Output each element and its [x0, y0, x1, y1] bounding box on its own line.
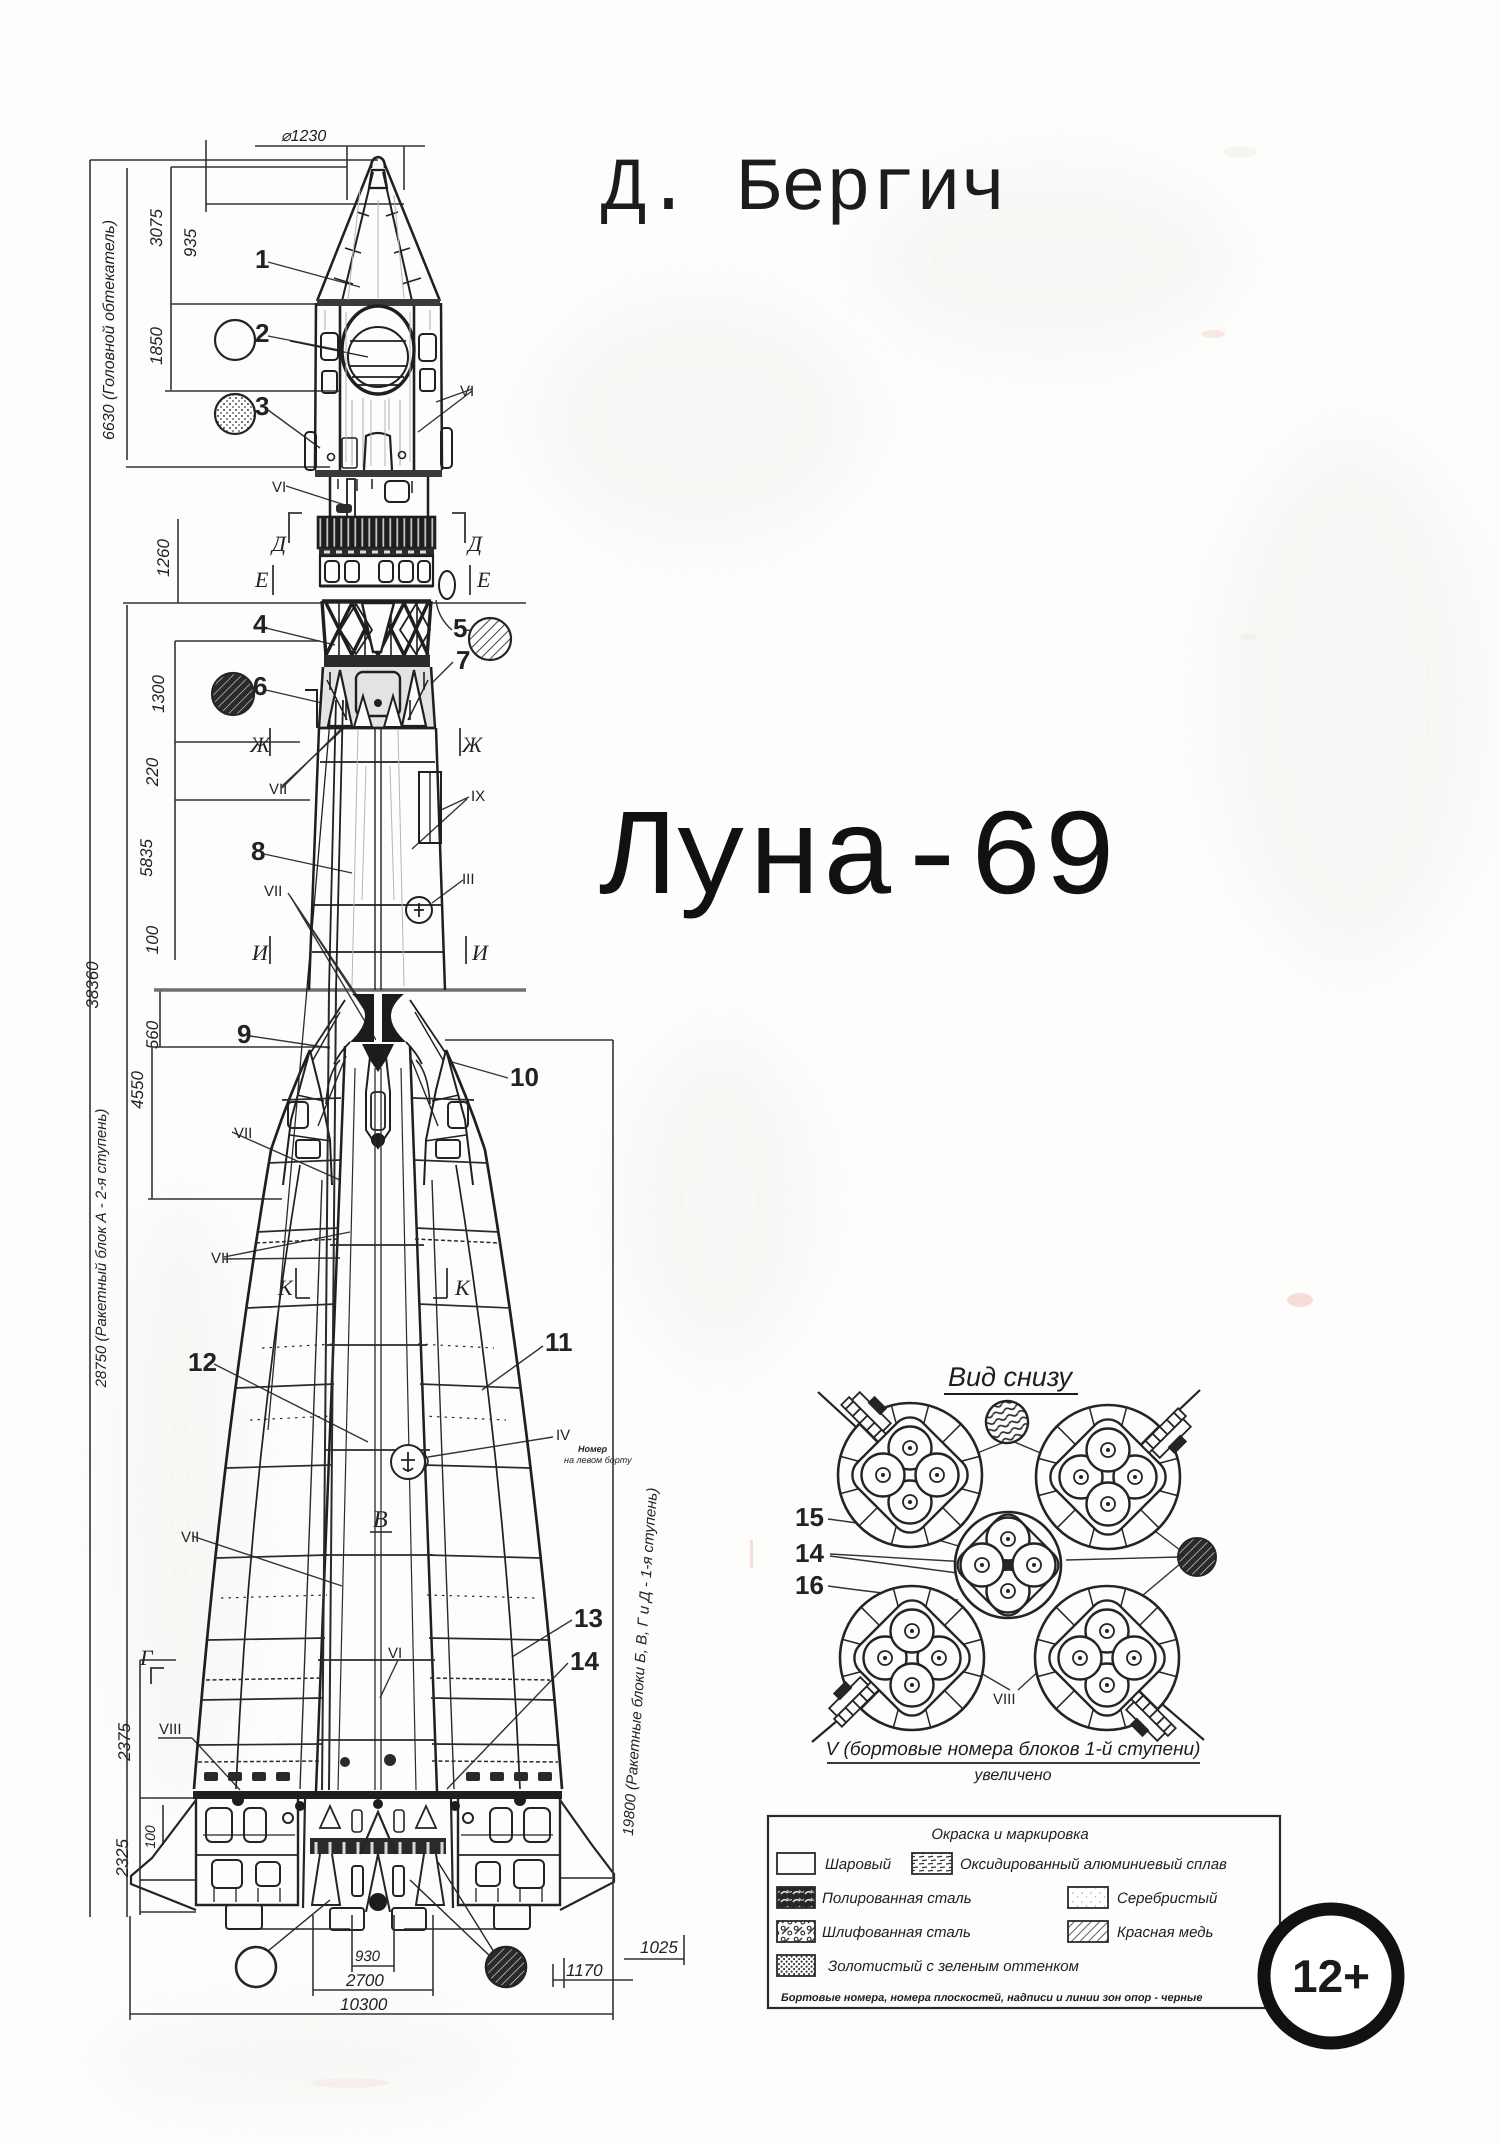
svg-text:2375: 2375 [115, 1723, 134, 1762]
svg-text:Г: Г [139, 1645, 154, 1670]
svg-text:560: 560 [143, 1020, 162, 1049]
svg-text:Номер: Номер [578, 1444, 608, 1454]
svg-text:Ж: Ж [461, 732, 483, 757]
svg-text:4550: 4550 [128, 1071, 147, 1109]
svg-text:1: 1 [255, 244, 269, 274]
svg-text:12: 12 [188, 1347, 217, 1377]
svg-text:4: 4 [253, 609, 268, 639]
svg-text:увеличено: увеличено [973, 1767, 1051, 1784]
svg-text:Луна-69: Луна-69 [599, 791, 1117, 930]
svg-text:Вид снизу: Вид снизу [948, 1362, 1073, 1392]
svg-text:2325: 2325 [113, 1839, 132, 1878]
svg-text:38360: 38360 [83, 961, 102, 1009]
svg-text:3075: 3075 [147, 209, 166, 247]
svg-text:VIII: VIII [993, 1691, 1016, 1708]
svg-text:К: К [454, 1275, 471, 1300]
svg-text:10: 10 [510, 1062, 539, 1092]
svg-text:V (бортовые номера блоков 1-й: V (бортовые номера блоков 1-й ступени) [826, 1739, 1201, 1760]
svg-text:Ж: Ж [249, 732, 271, 757]
svg-text:9: 9 [237, 1019, 251, 1049]
svg-text:Бортовые номера, номера плоско: Бортовые номера, номера плоскостей, надп… [781, 1992, 1202, 2004]
svg-text:Д. Бергич: Д. Бергич [601, 147, 1006, 232]
svg-text:1850: 1850 [147, 327, 166, 365]
svg-text:1260: 1260 [154, 539, 173, 577]
svg-text:Золотистый с зеленым оттенк: Золотистый с зеленым оттенком [828, 1958, 1079, 1975]
svg-text:7: 7 [456, 645, 470, 675]
svg-text:28750 (Ракетный блок А - 2-я с: 28750 (Ракетный блок А - 2-я ступень) [93, 1109, 110, 1389]
svg-text:Д: Д [270, 531, 287, 556]
svg-text:8: 8 [251, 836, 265, 866]
svg-text:6: 6 [253, 671, 267, 701]
svg-text:1170: 1170 [566, 1961, 603, 1980]
svg-text:220: 220 [143, 757, 162, 787]
svg-text:Красная медь: Красная медь [1117, 1924, 1214, 1941]
svg-text:VI: VI [272, 479, 286, 496]
svg-text:2700: 2700 [345, 1971, 384, 1990]
svg-text:IV: IV [556, 1427, 570, 1444]
svg-text:11: 11 [545, 1327, 573, 1357]
svg-text:Е: Е [254, 567, 269, 592]
svg-text:3: 3 [255, 391, 269, 421]
svg-text:III: III [462, 871, 475, 888]
svg-text:5: 5 [453, 613, 467, 643]
svg-text:Полированная сталь: Полированная сталь [822, 1890, 972, 1907]
svg-text:6630 (Головной обтекатель): 6630 (Головной обтекатель) [101, 220, 118, 440]
svg-text:5835: 5835 [137, 839, 156, 877]
svg-text:10300: 10300 [340, 1995, 388, 2014]
svg-text:Оксидированный алюминиевый с: Оксидированный алюминиевый сплав [960, 1856, 1227, 1873]
svg-text:Д: Д [466, 531, 483, 556]
svg-text:Шаровый: Шаровый [825, 1856, 892, 1873]
svg-text:Е: Е [476, 567, 491, 592]
svg-text:100: 100 [142, 1825, 158, 1849]
svg-text:2: 2 [255, 318, 269, 348]
svg-text:VII: VII [264, 883, 282, 900]
svg-text:12+: 12+ [1292, 1950, 1370, 2002]
svg-text:15: 15 [795, 1502, 824, 1532]
svg-text:VIII: VIII [159, 1721, 182, 1738]
svg-text:IX: IX [471, 788, 485, 805]
svg-text:1300: 1300 [149, 675, 168, 713]
svg-text:⌀1230: ⌀1230 [281, 128, 326, 145]
svg-text:930: 930 [355, 1948, 381, 1965]
svg-text:Серебристый: Серебристый [1117, 1890, 1218, 1907]
svg-text:на левом борту: на левом борту [564, 1455, 632, 1465]
svg-text:И: И [471, 940, 489, 965]
svg-text:16: 16 [795, 1570, 824, 1600]
svg-text:100: 100 [143, 925, 162, 954]
svg-text:14: 14 [570, 1646, 599, 1676]
svg-text:1025: 1025 [640, 1938, 678, 1957]
svg-text:И: И [251, 940, 269, 965]
svg-text:Шлифованная сталь: Шлифованная сталь [822, 1924, 971, 1941]
svg-text:935: 935 [181, 228, 200, 257]
svg-text:13: 13 [574, 1603, 603, 1633]
svg-text:Окраска и маркировка: Окраска и маркировка [931, 1826, 1088, 1843]
svg-text:14: 14 [795, 1538, 824, 1568]
